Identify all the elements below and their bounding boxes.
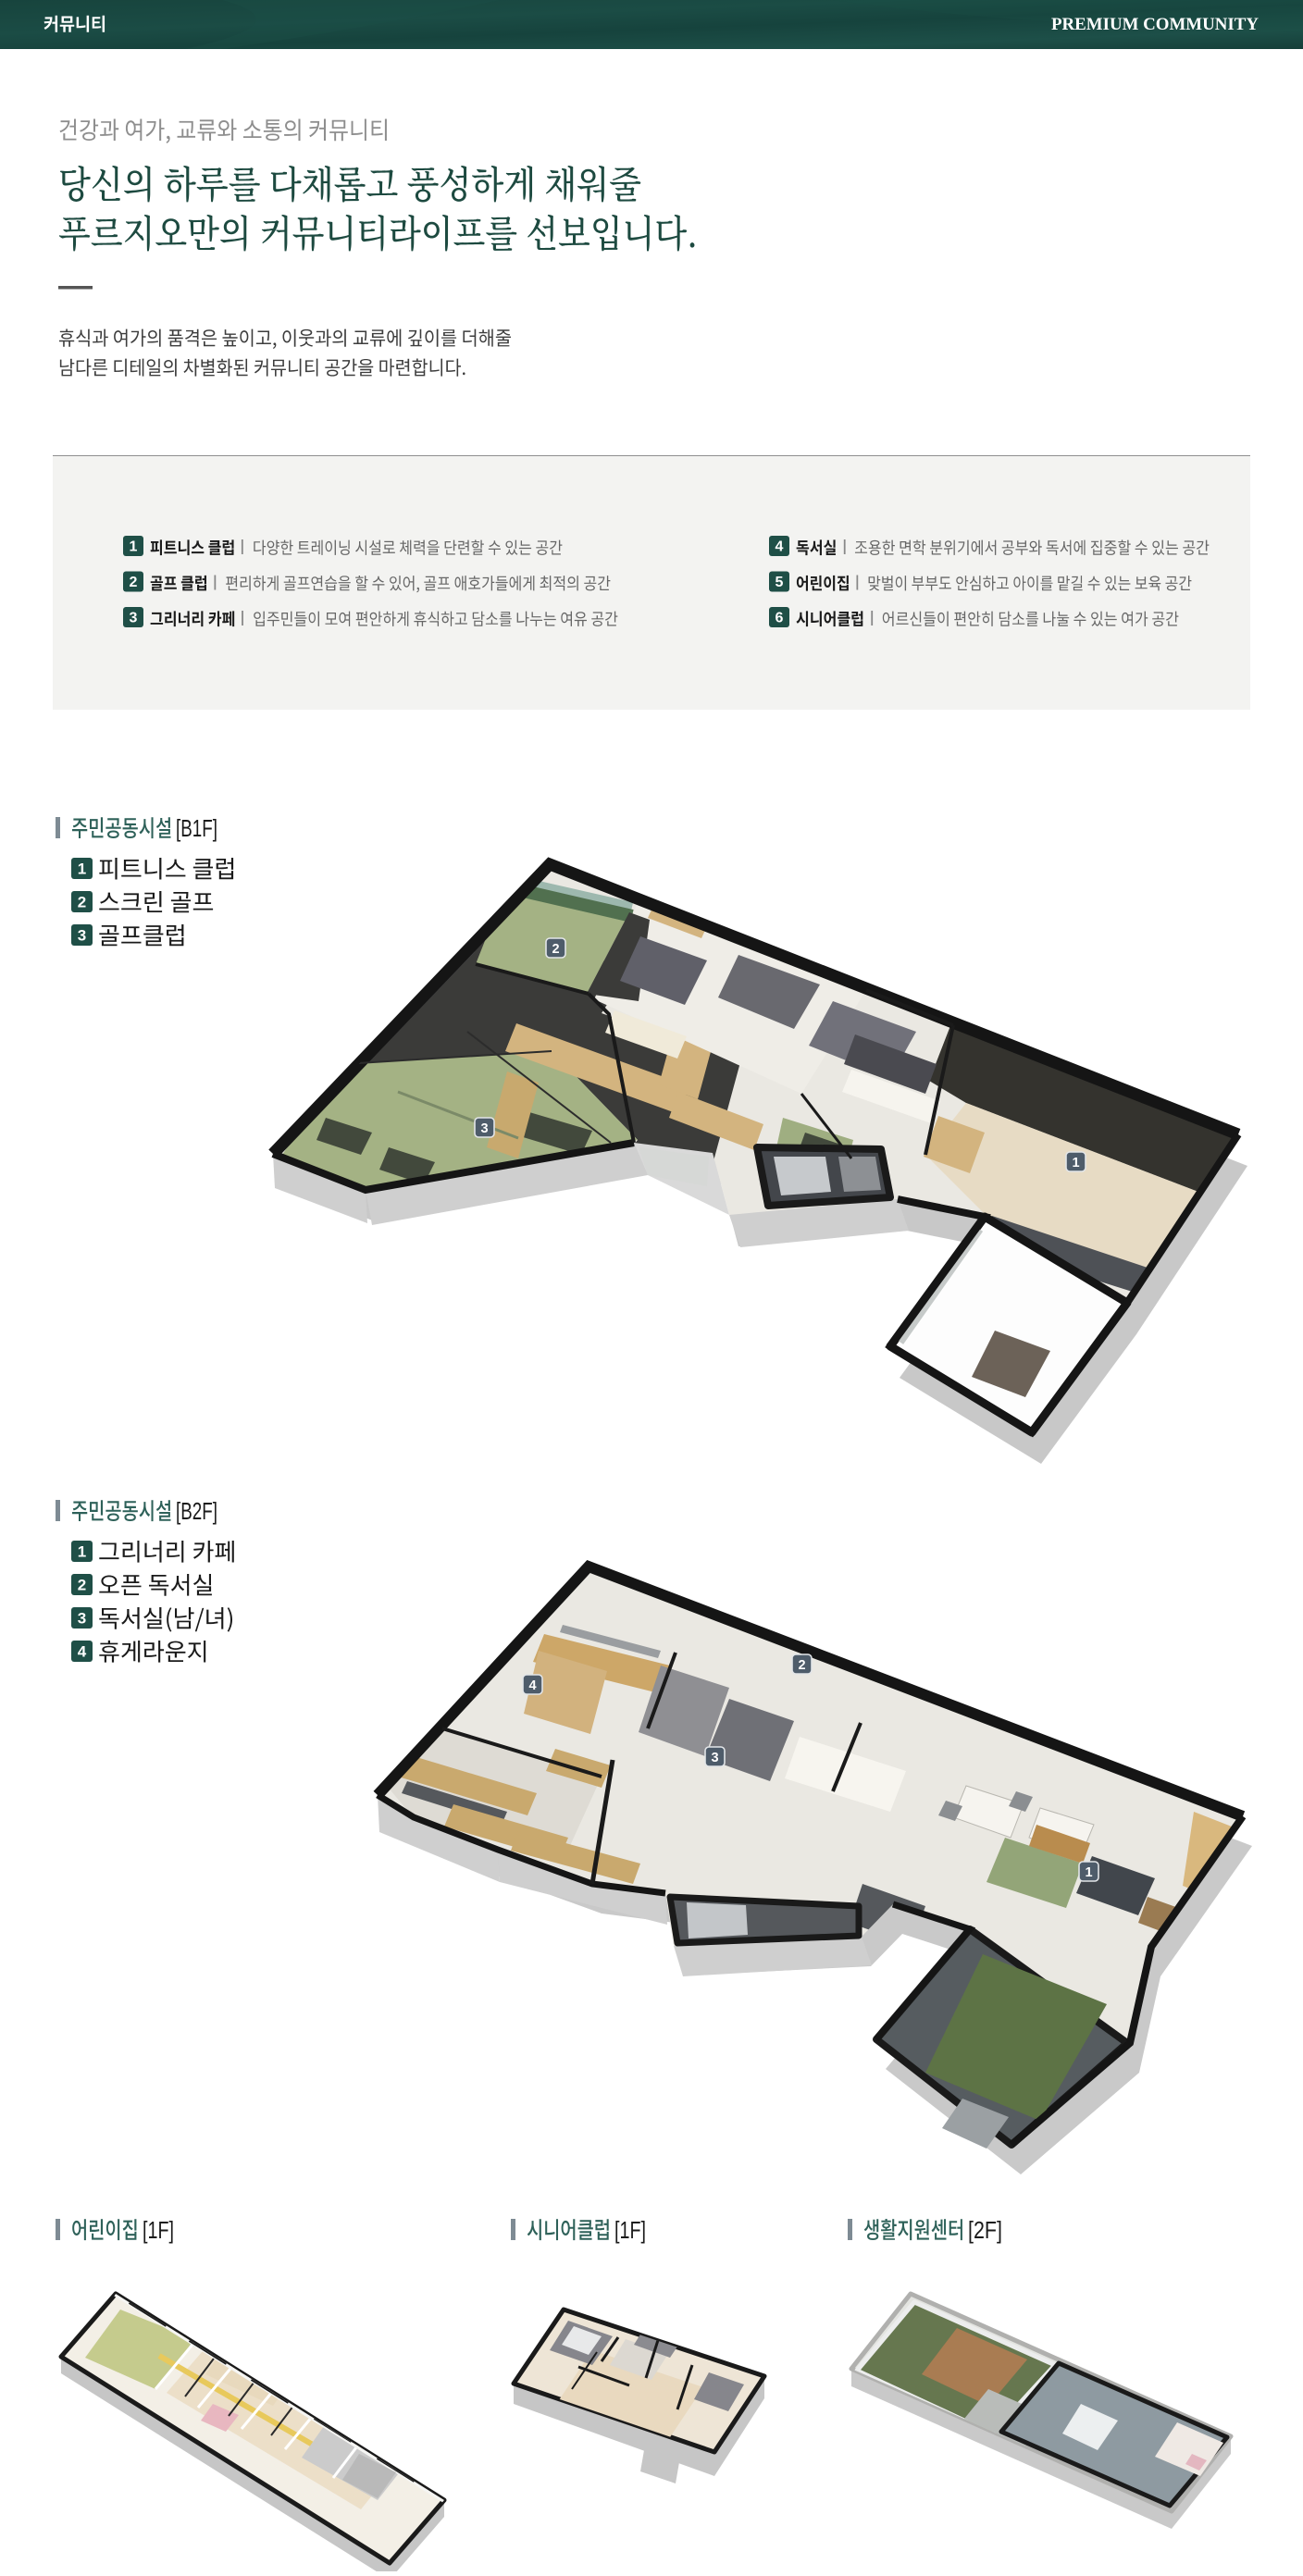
svg-text:PREMIUM COMMUNITY: PREMIUM COMMUNITY [1051,16,1260,34]
svg-text:1: 1 [1085,1865,1092,1880]
svg-text:3: 3 [480,1121,488,1136]
svg-text:2: 2 [78,1577,86,1594]
svg-text:[1F]: [1F] [143,2216,174,2244]
svg-text:2: 2 [798,1658,805,1673]
svg-text:4: 4 [78,1643,87,1661]
svg-text:1: 1 [130,539,138,555]
svg-text:4: 4 [776,539,784,555]
svg-text:2: 2 [78,894,86,911]
svg-text:[B1F]: [B1F] [176,814,217,842]
svg-text:1: 1 [78,861,86,878]
svg-text:3: 3 [130,611,138,626]
svg-text:3: 3 [78,1610,86,1628]
svg-text:[B2F]: [B2F] [176,1497,217,1525]
svg-text:[2F]: [2F] [968,2216,1002,2244]
svg-text:3: 3 [711,1751,718,1765]
svg-text:2: 2 [552,942,559,957]
svg-text:1: 1 [1072,1156,1079,1170]
svg-text:1: 1 [78,1543,86,1561]
svg-text:6: 6 [776,611,784,626]
svg-text:3: 3 [78,927,86,945]
svg-text:[1F]: [1F] [614,2216,646,2244]
svg-text:4: 4 [528,1678,536,1693]
svg-text:2: 2 [130,575,138,590]
svg-text:5: 5 [776,575,784,590]
